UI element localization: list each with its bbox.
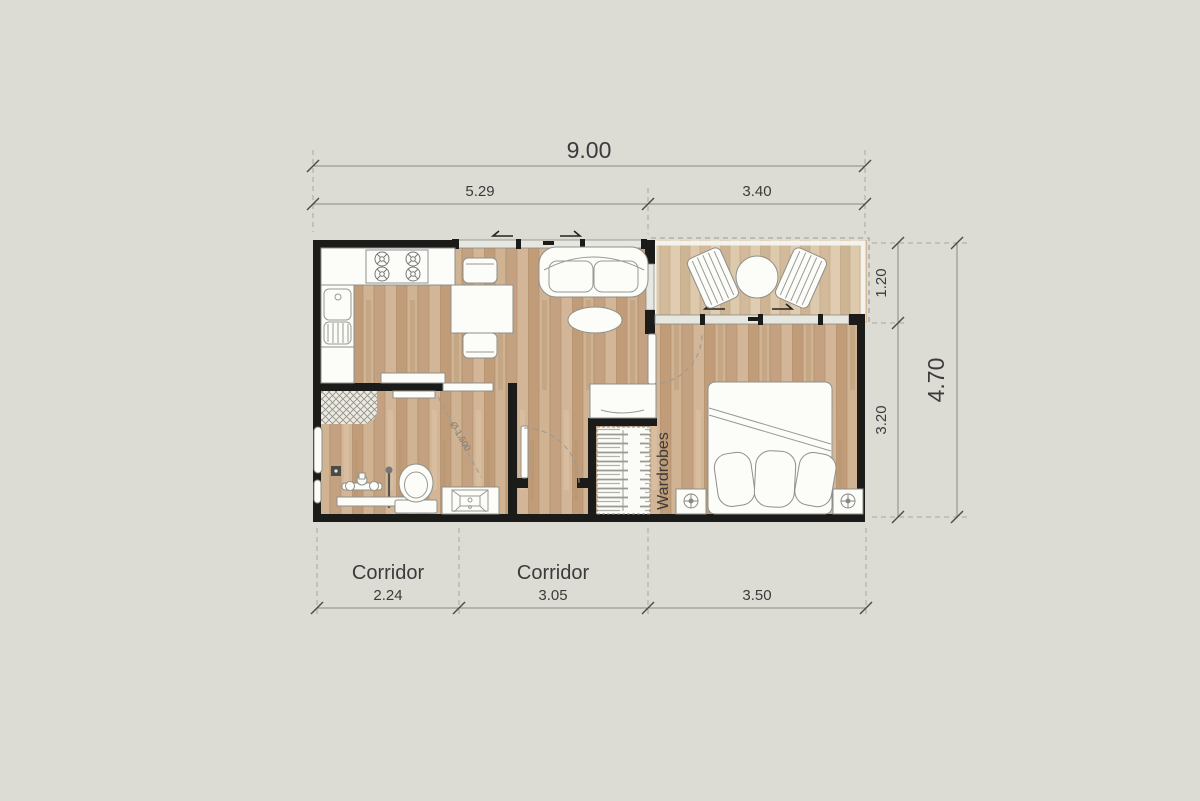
balcony-table	[736, 256, 778, 298]
window-bedroom-handle	[748, 317, 759, 321]
dim-bottom-middle-value: 3.05	[538, 587, 567, 604]
dim-top-total-value: 9.00	[567, 137, 612, 163]
dimension-top-total: 9.00	[307, 137, 871, 172]
dining-chair-top	[463, 258, 497, 283]
wall-balcony-divider-bottom	[645, 310, 655, 326]
bathroom-door-leaf	[443, 383, 493, 391]
dim-bottom-left-value: 2.24	[373, 587, 402, 604]
towel-bar-upper	[314, 427, 322, 473]
dim-top-left-value: 5.29	[465, 183, 494, 200]
window-bedroom-mullion-3	[818, 314, 823, 325]
shower-drain-hole	[334, 469, 337, 472]
wall-bathroom-top	[313, 383, 443, 391]
dim-top-right-value: 3.40	[742, 183, 771, 200]
window-top-mullion-2	[516, 239, 521, 249]
hall-shelf	[393, 391, 435, 398]
floor-plan-page: Wardrobes Ø 1	[0, 0, 1200, 801]
dining-table	[451, 285, 513, 333]
wall-bedroom-desk	[588, 418, 657, 426]
bedroom: Wardrobes	[590, 382, 863, 514]
floor-plan-drawing: Wardrobes Ø 1	[0, 0, 1200, 801]
bath-mat	[321, 391, 377, 424]
bedroom-door-leaf	[648, 334, 656, 384]
bed-pillows	[713, 450, 839, 509]
wardrobes-label: Wardrobes	[655, 432, 672, 510]
dim-right-bottom-value: 3.20	[873, 405, 890, 434]
corridor-label-left: Corridor	[352, 562, 425, 584]
dimension-right-total: 4.70	[923, 237, 963, 523]
sideboard	[381, 373, 445, 383]
dimension-right-segments: 1.20 3.20	[873, 237, 904, 523]
vanity-sink	[442, 487, 499, 514]
window-bedroom-mullion-1	[700, 314, 705, 325]
dimension-top-segments: 5.29 3.40	[307, 183, 871, 210]
wall-bathroom-right	[508, 383, 517, 514]
window-bedroom-end-block	[849, 314, 865, 325]
corridor-door-leaf	[521, 426, 528, 478]
dim-right-total-value: 4.70	[923, 358, 949, 403]
nightstand-lamp-left	[684, 494, 698, 508]
wall-wardrobe-back	[588, 426, 596, 514]
wall-top-kitchen	[313, 240, 455, 248]
corridor-door-jamb-left	[517, 478, 528, 488]
window-top-handle	[543, 241, 554, 245]
towel-bar-lower	[314, 480, 321, 503]
nightstand-lamp-right	[841, 494, 855, 508]
wall-bedroom-door-stub	[645, 324, 655, 334]
dining-chair-bottom	[463, 333, 497, 358]
dim-bottom-right-value: 3.50	[742, 587, 771, 604]
wall-bottom	[313, 514, 865, 522]
dim-right-top-value: 1.20	[873, 268, 890, 297]
window-opening-arrow-right	[560, 231, 580, 236]
kitchen-cabinet-lower	[321, 347, 354, 383]
window-opening-arrow-left	[493, 231, 513, 236]
dimension-bottom-segments: 2.24 3.05 3.50	[311, 587, 872, 614]
window-top-mullion-4	[641, 239, 647, 249]
coffee-table	[568, 307, 622, 333]
corridor-label-middle: Corridor	[517, 562, 590, 584]
